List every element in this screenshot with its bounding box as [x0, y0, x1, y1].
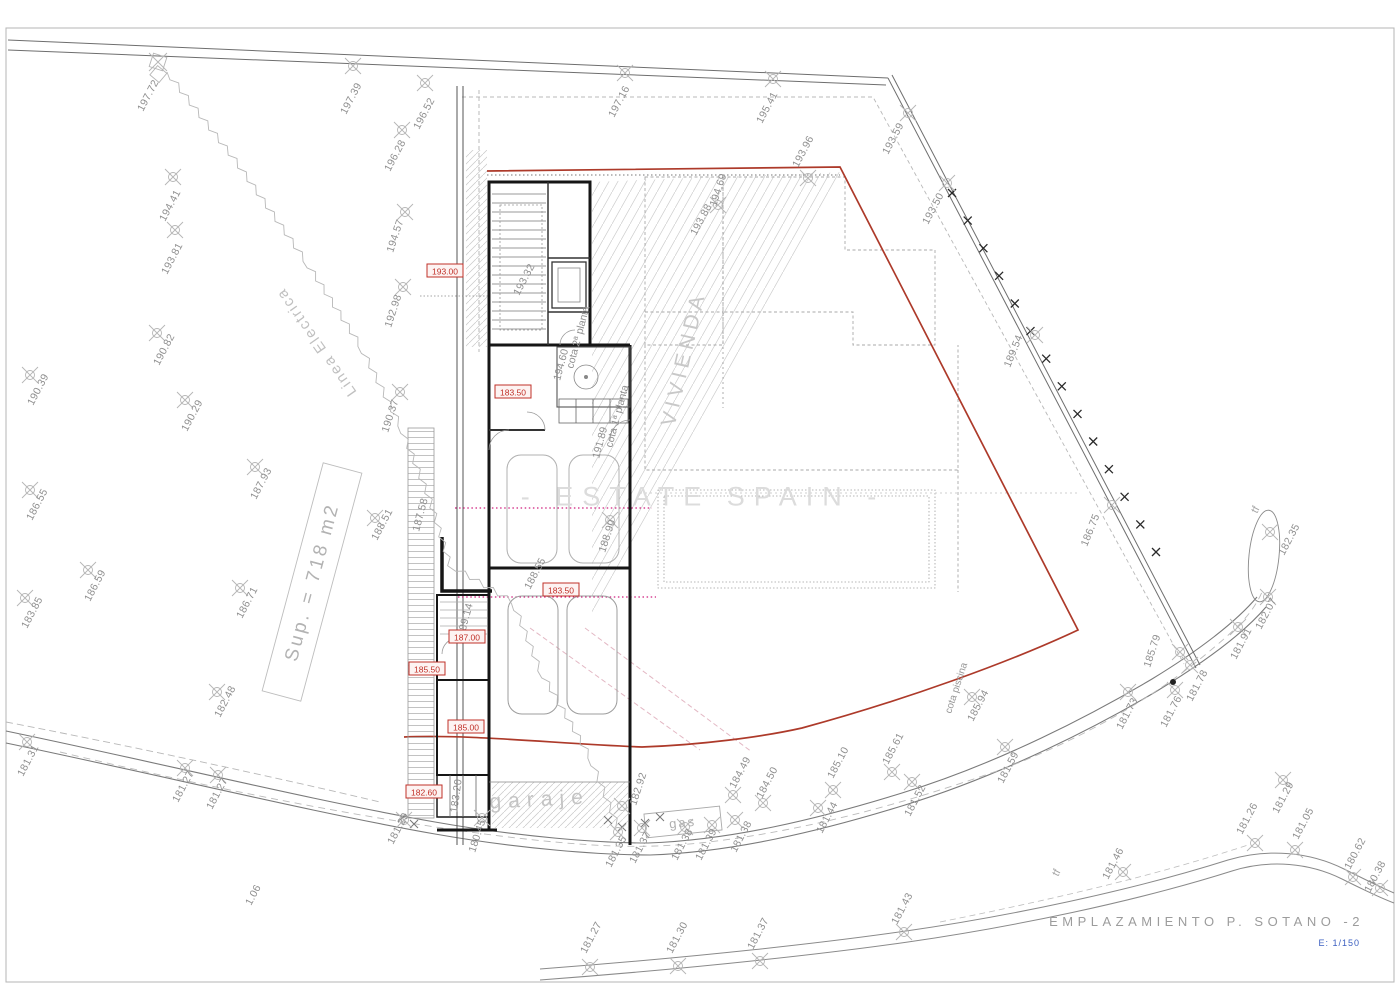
survey-point-label: 181.44 [814, 800, 841, 836]
survey-point-marker [617, 65, 633, 81]
fence-x-mark [1058, 382, 1066, 390]
survey-point-label: 186.75 [1079, 512, 1103, 548]
survey-point-marker [725, 787, 741, 803]
survey-point-label: 190.29 [179, 398, 206, 434]
survey-point-marker [165, 169, 181, 185]
level-box: 185.00 [448, 720, 484, 733]
survey-point-label: 190.39 [25, 372, 52, 408]
survey-point-marker [345, 58, 361, 74]
level-box: 185.50 [409, 662, 445, 675]
survey-point-label: 183.20 [448, 778, 465, 813]
survey-point-label: 182.48 [212, 684, 239, 720]
road-lower-centerline [940, 845, 1248, 922]
survey-point-label: 181.35 [603, 834, 630, 870]
survey-point-label: 192.98 [382, 293, 404, 329]
survey-point-label: 181.27 [170, 769, 197, 805]
survey-point-label: 185.79 [1141, 633, 1163, 669]
fence-marks [948, 189, 1160, 556]
svg-text:193.00: 193.00 [432, 267, 458, 277]
survey-point-marker [670, 958, 686, 974]
svg-text:183.50: 183.50 [500, 388, 526, 398]
svg-text:182.60: 182.60 [411, 788, 437, 798]
survey-point-marker [1104, 497, 1120, 513]
survey-point-label: 181.05 [1290, 806, 1317, 842]
fence-x-mark [964, 217, 972, 225]
survey-point-label: 180.62 [1342, 836, 1369, 872]
level-box: 182.60 [406, 785, 442, 798]
level-box: 183.50 [543, 583, 579, 596]
survey-point-marker [1262, 524, 1278, 540]
survey-point-marker [825, 782, 841, 798]
survey-point-label: 187.93 [248, 466, 275, 502]
survey-point-marker [582, 959, 598, 975]
survey-point-label: 181.43 [889, 891, 916, 927]
survey-point-label: 181.78 [1184, 668, 1211, 704]
survey-point-label: 195.41 [754, 90, 781, 126]
survey-point-marker [1247, 835, 1263, 851]
survey-point-label: 197.16 [606, 84, 633, 120]
survey-point-label: 181.27 [204, 776, 231, 812]
fence-x-mark [1121, 493, 1129, 501]
fence-x-mark [1042, 355, 1050, 363]
survey-point-label: 181.26 [1234, 801, 1261, 837]
svg-text:185.50: 185.50 [414, 665, 440, 675]
annotation-text: gas [668, 814, 696, 832]
survey-point-label: 193.81 [159, 241, 186, 277]
survey-point-marker [884, 764, 900, 780]
survey-point-marker [392, 384, 408, 400]
survey-point-label: 193.50 [920, 191, 947, 227]
survey-point-marker [149, 53, 167, 82]
svg-text:183.50: 183.50 [548, 586, 574, 596]
survey-point-marker [417, 75, 433, 91]
survey-point-marker [167, 222, 183, 238]
survey-point-label: 188.51 [369, 507, 396, 543]
annotation-text: cota piscina [943, 661, 970, 715]
survey-point-marker [1027, 327, 1043, 343]
survey-point-label: 194.57 [384, 218, 406, 254]
survey-point-marker [395, 279, 411, 295]
svg-text:187.00: 187.00 [454, 633, 480, 643]
survey-point-marker [1287, 842, 1303, 858]
survey-point-marker [394, 122, 410, 138]
level-box: 193.00 [427, 264, 463, 277]
survey-point-label: 181.76 [1158, 694, 1185, 730]
boundary-end-dot [1170, 679, 1176, 685]
fence-x-mark [1136, 520, 1144, 528]
survey-point-label: 184.49 [727, 755, 754, 791]
exterior-stair-strip [408, 428, 434, 818]
survey-point-label: 184.50 [754, 765, 781, 801]
site-plan-canvas: 197.72197.39196.52196.28194.41193.81194.… [0, 0, 1400, 989]
fence-x-mark [1152, 548, 1160, 556]
survey-point-label: 186.59 [82, 568, 109, 604]
survey-point-label: 1.06 [243, 883, 264, 908]
survey-point-marker [1345, 869, 1361, 885]
survey-point-label: 181.31 [15, 743, 42, 779]
fence-x-mark [1105, 465, 1113, 473]
survey-point-marker [397, 204, 413, 220]
annotation-text: tf [1050, 867, 1064, 879]
level-box: 187.00 [449, 630, 485, 643]
survey-point-label: 181.27 [578, 920, 605, 956]
survey-point-label: 180.45 [466, 818, 488, 854]
survey-point-label: 181.29 [1270, 780, 1297, 816]
fence-x-mark [1089, 438, 1097, 446]
survey-point-label: 197.72 [135, 78, 162, 114]
drawing-scale: E: 1/150 [1318, 938, 1360, 948]
road-upper-offset-dash [6, 722, 380, 802]
svg-text:Sup. = 718 m2: Sup. = 718 m2 [281, 501, 344, 664]
fence-x-mark [1074, 410, 1082, 418]
survey-point-label: 196.28 [382, 138, 409, 174]
survey-point-label: 185.61 [880, 731, 907, 767]
annotation-text: tf [1249, 504, 1263, 516]
road-upper [6, 509, 1284, 855]
survey-point-label: 196.52 [411, 96, 438, 132]
level-box: 183.50 [495, 385, 531, 398]
survey-point-marker [939, 175, 955, 191]
survey-point-label: 197.39 [338, 81, 365, 117]
road-upper-centerline [60, 592, 1262, 846]
survey-point-label: 181.38 [728, 819, 755, 855]
watermark: - ESTATE SPAIN - [521, 482, 886, 513]
survey-point-marker [900, 105, 916, 121]
fence-x-mark [1011, 300, 1019, 308]
plot-area-label: Sup. = 718 m2 [262, 463, 362, 701]
survey-point-label: 181.37 [745, 916, 772, 952]
survey-point-label: 185.10 [825, 745, 852, 781]
svg-text:185.00: 185.00 [453, 723, 479, 733]
drawing-title: EMPLAZAMIENTO P. SOTANO -2 [1049, 914, 1364, 929]
survey-point-label: 181.59 [995, 750, 1022, 786]
annotation-text: Linea Electrica [273, 285, 361, 400]
survey-point-label: 181.30 [664, 920, 691, 956]
survey-point-label: 193.96 [790, 134, 817, 170]
survey-point-label: 194.41 [157, 188, 184, 224]
